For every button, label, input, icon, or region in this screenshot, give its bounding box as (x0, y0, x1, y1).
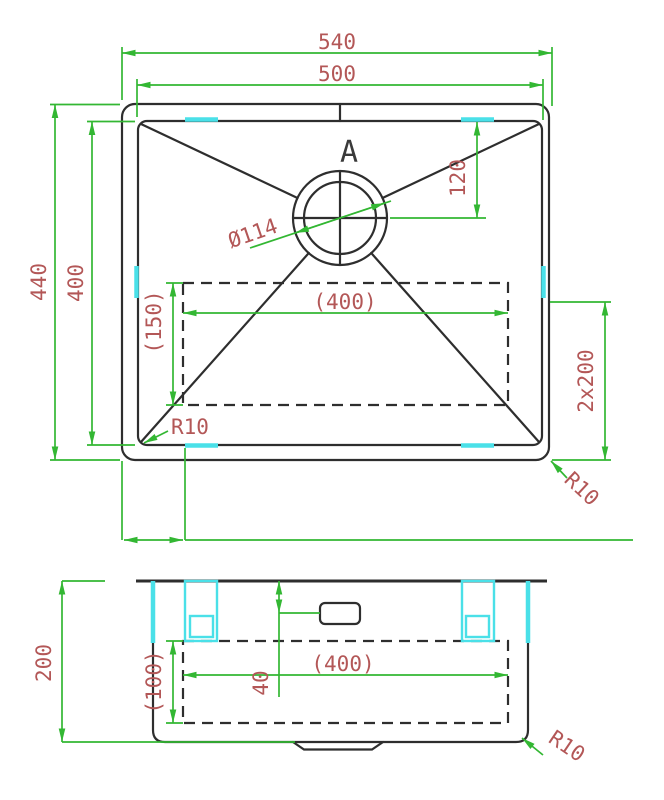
top-view: A 540 500 440 (27, 30, 633, 540)
dim-label-540: 540 (318, 30, 356, 54)
dim-corner-radius-side: R10 (522, 726, 589, 767)
dim-base-width: (400) (183, 290, 508, 314)
overflow-hole (320, 603, 360, 624)
clip-screw-left (190, 616, 213, 637)
sink-technical-drawing: A 540 500 440 (0, 0, 664, 800)
dim-base-width-side: (400) (183, 652, 508, 676)
bowl-slope-line-top-left (141, 124, 298, 198)
dim-label-base-depth: (150) (142, 290, 166, 353)
section-label: A (340, 135, 358, 170)
dim-label-base-height: (100) (142, 650, 166, 713)
dim-base-height: (100) (142, 641, 183, 723)
dim-drain-diameter: Ø114 (225, 201, 391, 253)
clip-screw-right (466, 616, 489, 637)
dim-label-500: 500 (318, 62, 356, 86)
dim-label-120: 120 (446, 159, 470, 197)
dim-bowl-depth: 400 (64, 122, 135, 446)
dim-outer-corner-radius: R10 (551, 461, 604, 511)
dim-label-440: 440 (27, 263, 51, 301)
drawing-canvas: A 540 500 440 (0, 0, 664, 800)
dim-label-40: 40 (249, 670, 273, 695)
dim-overflow-offset: 40 (249, 581, 320, 697)
dim-label-base-width-side: (400) (311, 652, 374, 676)
clip-hardware-side-view (153, 581, 528, 643)
dim-label-r10-bowl: R10 (171, 415, 209, 439)
dim-label-400: 400 (64, 264, 88, 302)
dim-clip-offset-lines (122, 448, 633, 540)
dim-label-200: 200 (32, 644, 56, 682)
dim-drain-offset: 120 (390, 122, 486, 218)
dim-label-r10-outer: R10 (560, 467, 604, 510)
dim-label-base-width: (400) (313, 290, 376, 314)
bowl-slope-line-bottom-right (371, 253, 539, 442)
dim-label-r10-side: R10 (544, 726, 589, 767)
bowl-slope-line-bottom-left (141, 253, 309, 442)
dim-base-depth: (150) (142, 283, 183, 405)
drain-boss-bump (293, 742, 383, 750)
dim-clip-pitch: 2x200 (550, 302, 611, 460)
dim-label-clip-pitch: 2x200 (574, 349, 598, 412)
side-view: 200 (100) (400) 40 R10 (32, 581, 589, 767)
